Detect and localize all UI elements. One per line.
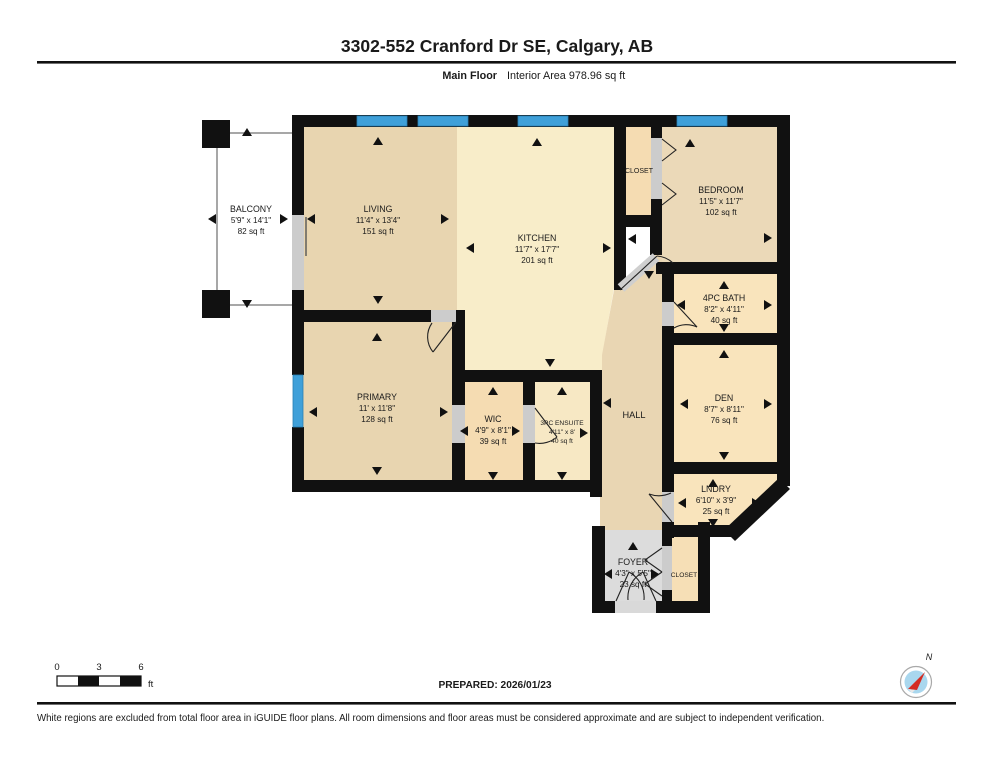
room-name: 3PC ENSUITE bbox=[540, 420, 584, 427]
scale-bar-segment bbox=[78, 676, 99, 686]
scale-bar-segment bbox=[120, 676, 141, 686]
page-title: 3302-552 Cranford Dr SE, Calgary, AB bbox=[341, 36, 653, 56]
room-name: DEN bbox=[715, 393, 734, 403]
room-area: 201 sq ft bbox=[521, 256, 553, 265]
room-dims: 8'7" x 8'11" bbox=[704, 405, 744, 414]
header-divider bbox=[37, 61, 956, 64]
entry-door-opening bbox=[615, 601, 656, 613]
room-area: 39 sq ft bbox=[480, 437, 508, 446]
room-dims: 4'3" x 5'5" bbox=[615, 569, 651, 578]
window bbox=[293, 375, 303, 427]
room-dims: 4'9" x 8'1" bbox=[475, 426, 511, 435]
room-label-closet: CLOSET bbox=[625, 168, 654, 175]
floorplan-canvas: 3302-552 Cranford Dr SE, Calgary, AB Mai… bbox=[0, 0, 993, 768]
disclaimer-text: White regions are excluded from total fl… bbox=[37, 713, 824, 724]
balcony-pillar bbox=[202, 290, 230, 318]
room-name: LIVING bbox=[364, 204, 393, 214]
room-label-foyer-closet: CLOSET bbox=[671, 572, 697, 579]
window bbox=[677, 116, 727, 126]
room-dims: 11' x 11'8" bbox=[359, 404, 395, 413]
floor-label: Main Floor bbox=[442, 70, 497, 82]
room-area: 102 sq ft bbox=[705, 208, 737, 217]
scale-tick: 0 bbox=[54, 662, 59, 673]
room-area: 151 sq ft bbox=[362, 227, 394, 236]
room-name: WIC bbox=[484, 414, 502, 424]
room-dims: 11'4" x 13'4" bbox=[356, 216, 400, 225]
room-label-hall: HALL bbox=[623, 410, 646, 420]
room-name: HALL bbox=[623, 410, 646, 420]
room-dims: 11'7" x 17'7" bbox=[515, 245, 559, 254]
floorplan-page: 3302-552 Cranford Dr SE, Calgary, AB Mai… bbox=[0, 0, 993, 768]
room-area: 76 sq ft bbox=[711, 416, 739, 425]
door-opening bbox=[452, 405, 465, 443]
room-name: 4PC BATH bbox=[703, 293, 745, 303]
room-name: PRIMARY bbox=[357, 392, 397, 402]
room-label-balcony: BALCONY 5'9" x 14'1" 82 sq ft bbox=[230, 204, 272, 236]
interior-area-label: Interior Area 978.96 sq ft bbox=[507, 70, 625, 82]
compass: N bbox=[901, 652, 933, 698]
compass-north-label: N bbox=[926, 652, 933, 662]
room-name: KITCHEN bbox=[518, 233, 557, 243]
room-area: 40 sq ft bbox=[551, 438, 573, 445]
scale-tick: 3 bbox=[96, 662, 101, 673]
scale-bar: 0 3 6 ft bbox=[54, 662, 153, 690]
sliding-door bbox=[292, 215, 304, 290]
room-area: 128 sq ft bbox=[361, 415, 393, 424]
window bbox=[357, 116, 407, 126]
room-area: 82 sq ft bbox=[238, 227, 266, 236]
room-label-foyer: FOYER 4'3" x 5'5" 23 sq ft bbox=[615, 557, 651, 589]
closet-door-opening bbox=[662, 546, 672, 590]
room-area: 25 sq ft bbox=[703, 507, 731, 516]
room-label-primary: PRIMARY 11' x 11'8" 128 sq ft bbox=[357, 392, 397, 424]
room-name: FOYER bbox=[618, 557, 648, 567]
footer-divider bbox=[37, 702, 956, 705]
room-name: LNDRY bbox=[701, 484, 731, 494]
window bbox=[418, 116, 468, 126]
header: 3302-552 Cranford Dr SE, Calgary, AB Mai… bbox=[37, 36, 956, 82]
room-dims: 6'10" x 3'9" bbox=[696, 496, 736, 505]
room-name: BEDROOM bbox=[698, 185, 743, 195]
room-area: 23 sq ft bbox=[620, 580, 648, 589]
prepared-date: PREPARED: 2026/01/23 bbox=[438, 680, 551, 691]
room-name: CLOSET bbox=[625, 168, 654, 175]
footer: 0 3 6 ft PREPARED: 2026/01/23 N White re… bbox=[37, 652, 956, 724]
room-dims: 8'2" x 4'11" bbox=[704, 305, 744, 314]
window bbox=[518, 116, 568, 126]
door-opening bbox=[523, 405, 535, 443]
balcony-pillar bbox=[202, 120, 230, 148]
room-area: 40 sq ft bbox=[711, 316, 739, 325]
room-label-kitchen: KITCHEN 11'7" x 17'7" 201 sq ft bbox=[515, 233, 559, 265]
scale-tick: 6 bbox=[138, 662, 143, 673]
door-opening bbox=[431, 310, 456, 322]
room-dims: 11'5" x 11'7" bbox=[699, 197, 743, 206]
door-opening bbox=[662, 302, 674, 326]
scale-unit-label: ft bbox=[148, 679, 154, 690]
room-dims: 5'9" x 14'1" bbox=[231, 216, 271, 225]
room-name: BALCONY bbox=[230, 204, 272, 214]
room-dims: 4'11" x 8' bbox=[549, 429, 575, 436]
room-name: CLOSET bbox=[671, 572, 697, 579]
